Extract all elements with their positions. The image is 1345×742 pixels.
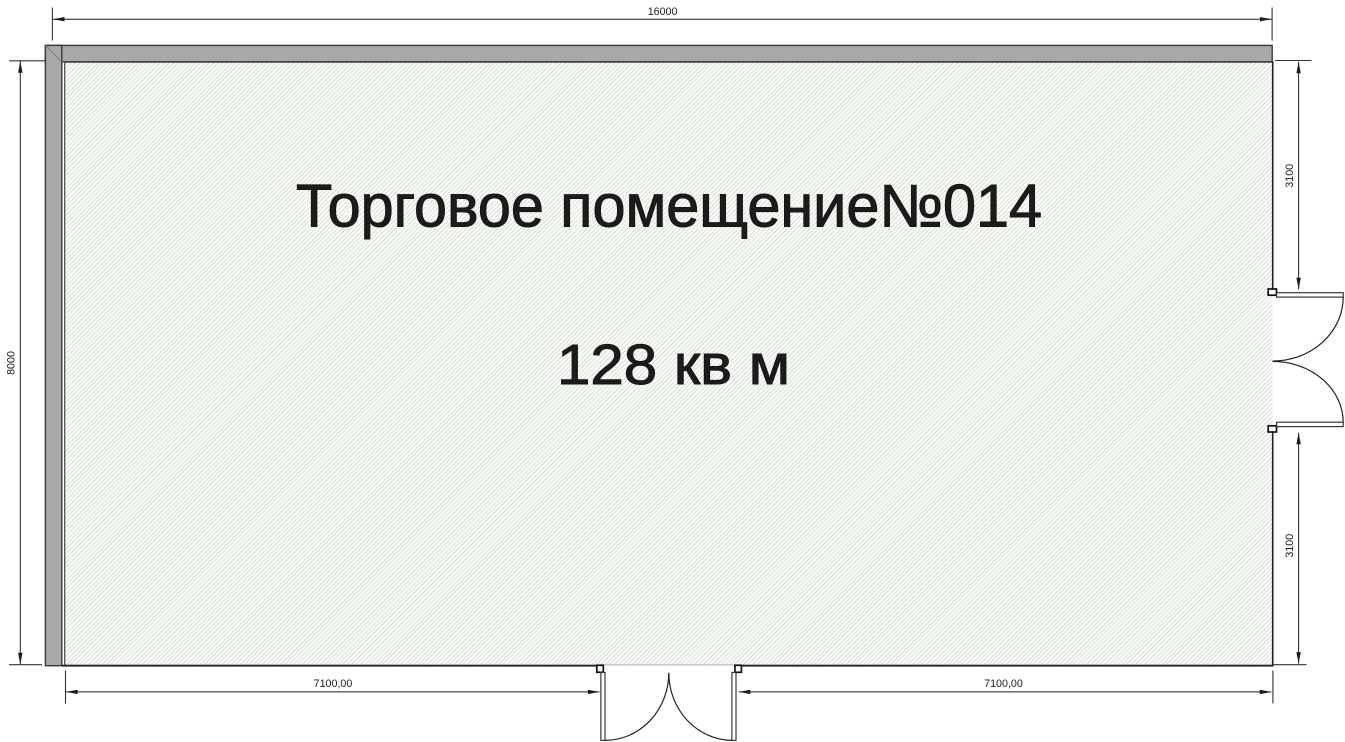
svg-text:Торговое помещение№014: Торговое помещение№014	[296, 173, 1042, 240]
svg-text:128 кв м: 128 кв м	[557, 333, 790, 396]
svg-text:8000: 8000	[6, 351, 18, 375]
svg-text:3100: 3100	[1284, 164, 1296, 188]
svg-text:7100,00: 7100,00	[314, 678, 353, 690]
svg-text:7100,00: 7100,00	[984, 678, 1023, 690]
svg-text:3100: 3100	[1284, 534, 1296, 558]
svg-text:16000: 16000	[648, 6, 678, 18]
